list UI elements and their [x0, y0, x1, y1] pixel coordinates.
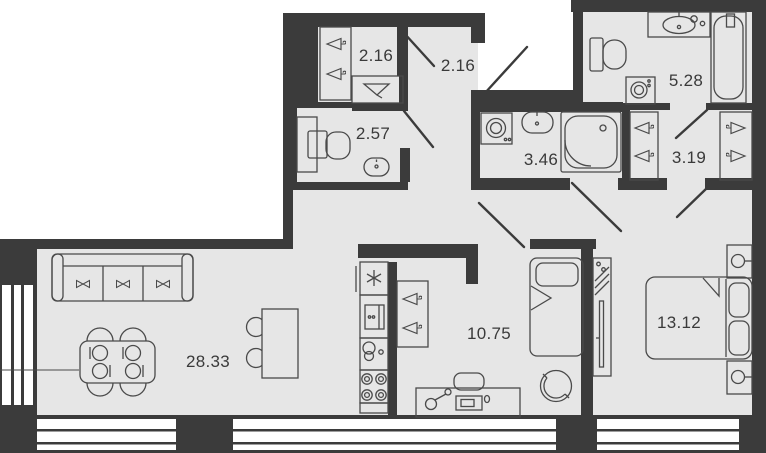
room-label-shower-room: 3.46: [524, 150, 558, 169]
bottom-exterior-wall: [0, 415, 766, 453]
room-label-bathroom: 5.28: [669, 71, 703, 90]
window: [597, 419, 739, 450]
window: [37, 419, 176, 450]
room-label-living-kitchen: 28.33: [186, 352, 230, 371]
room-label-bedroom-master: 13.12: [657, 313, 701, 332]
apartment-floor: [0, 0, 766, 453]
room-label-bedroom-second: 10.75: [467, 324, 511, 343]
floor-plan-drawing: 2.16 2.16 2.57 3.46 5.28 3.19 28.33 10.7…: [0, 0, 766, 453]
room-label-wc: 2.57: [356, 124, 390, 143]
entrance-recess: [478, 13, 575, 92]
room-label-closet-top: 2.16: [359, 46, 393, 65]
room-label-hall-entry: 2.16: [441, 56, 475, 75]
window: [0, 285, 37, 405]
floor-plan-page: 2.16 2.16 2.57 3.46 5.28 3.19 28.33 10.7…: [0, 0, 766, 453]
room-label-walkin-wardrobe: 3.19: [672, 148, 706, 167]
window: [233, 419, 556, 450]
